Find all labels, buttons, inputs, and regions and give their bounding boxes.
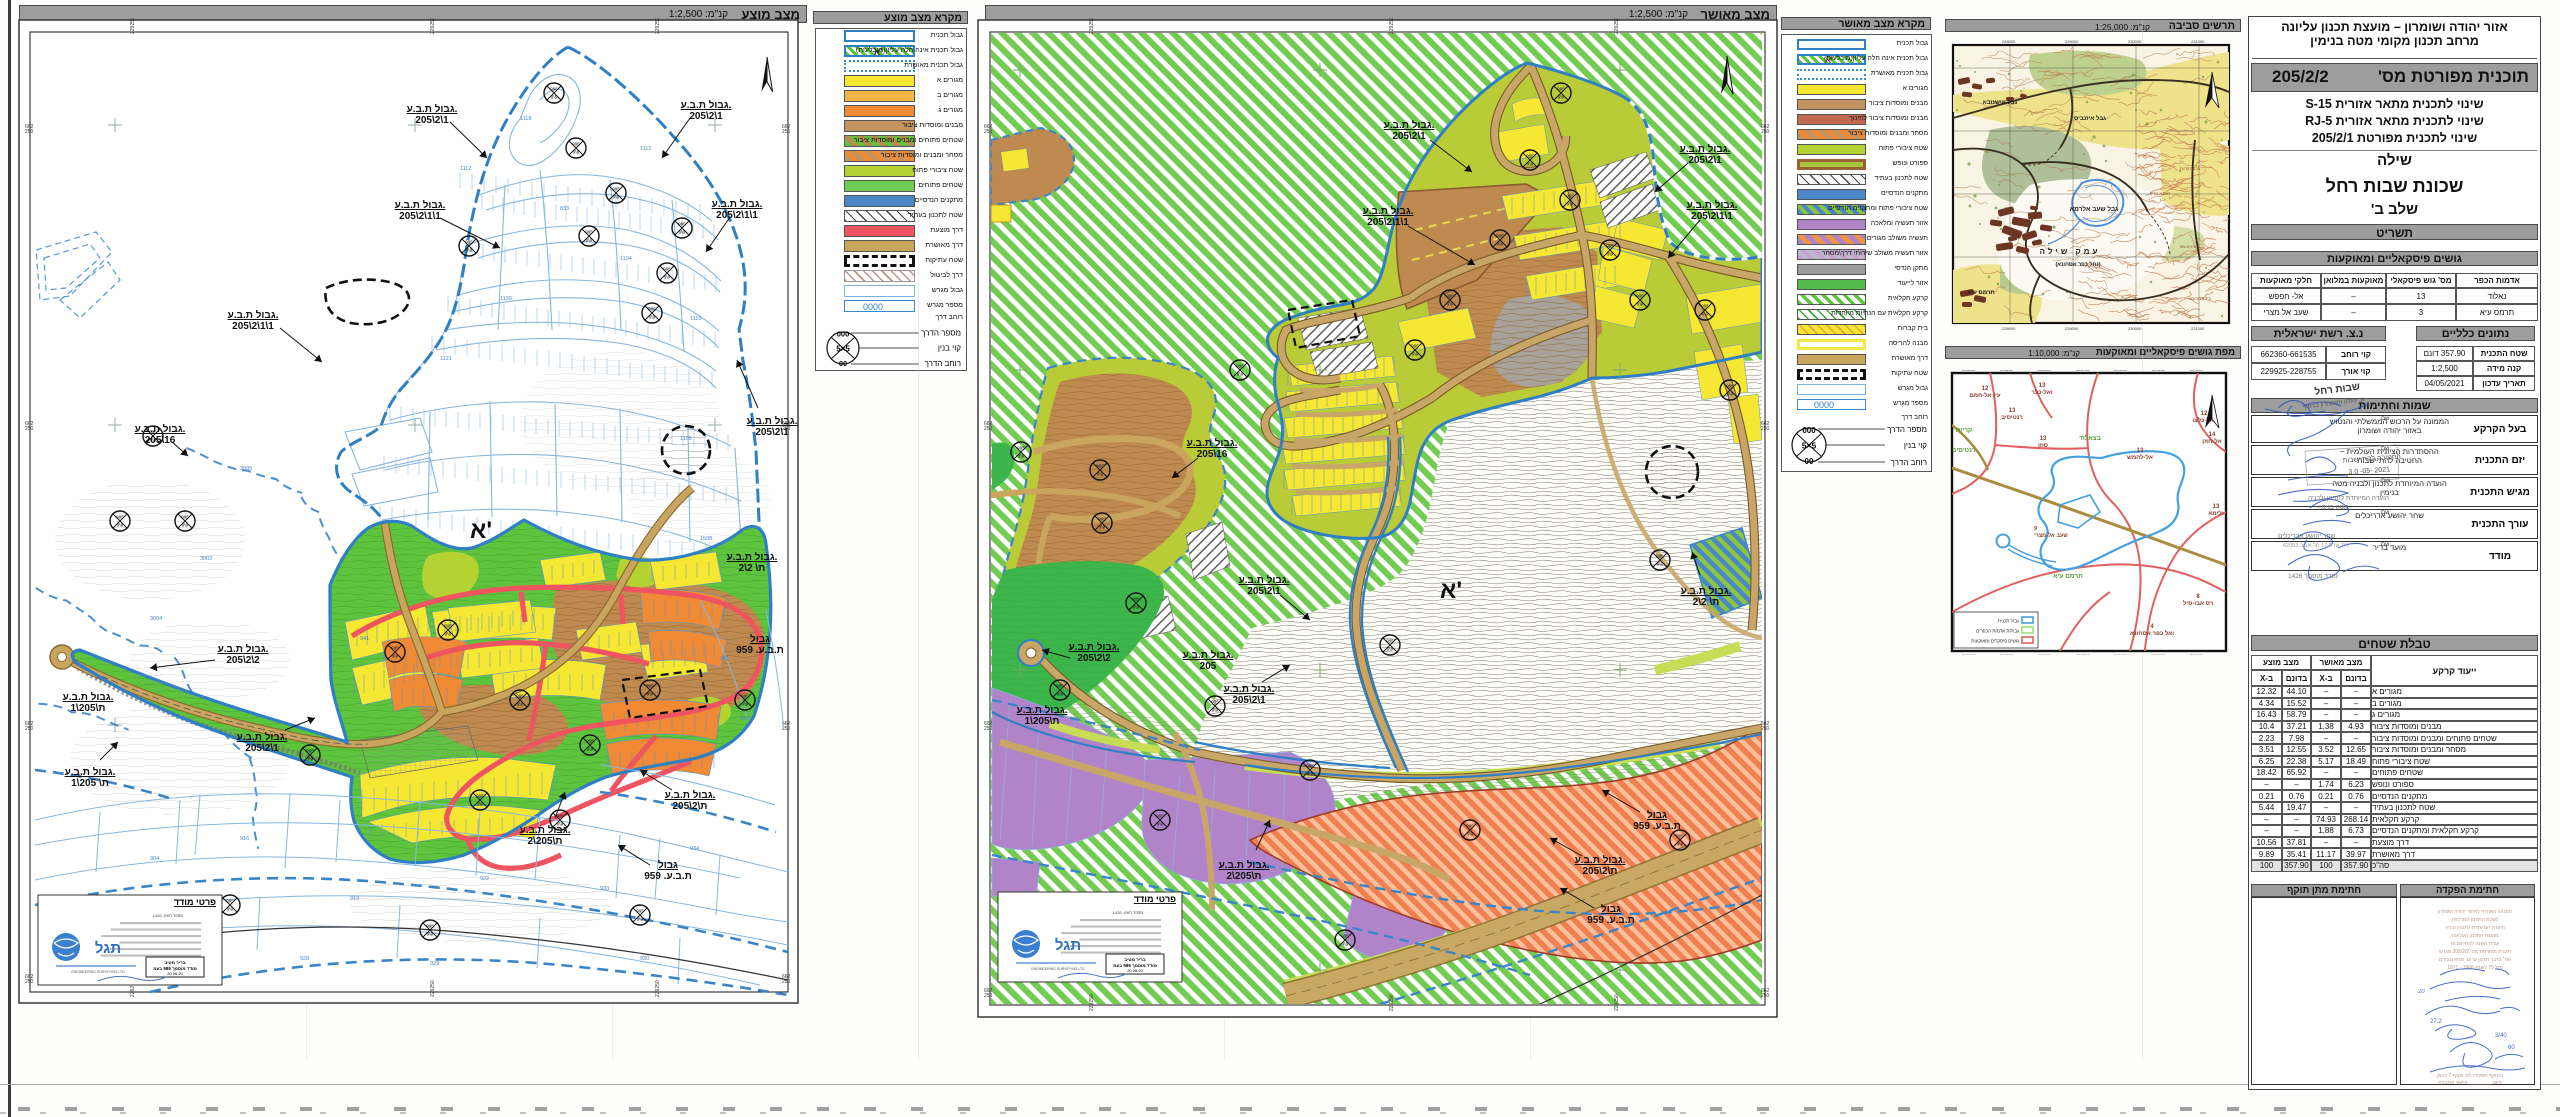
svg-text:אל-חוזן: אל-חוזן: [2202, 437, 2221, 445]
svg-text:הועדה המיוחדת לתכנון ולבניה: הועדה המיוחדת לתכנון ולבניה: [2308, 494, 2389, 502]
svg-text:995: 995: [1211, 700, 1219, 705]
svg-text:מועצת התכנון העליונה: מועצת התכנון העליונה: [2452, 932, 2499, 939]
svg-text:995: 995: [586, 739, 594, 744]
svg-text:גבל שעב אלרמא: גבל שעב אלרמא: [2070, 205, 2119, 213]
svg-text:גבול: גבול: [750, 633, 770, 645]
svg-text:ועדת משנה להתיישבות: ועדת משנה להתיישבות: [2451, 940, 2499, 947]
svg-text:13: 13: [2213, 504, 2220, 510]
svg-text:995: 995: [1526, 154, 1534, 159]
svg-text:רוחב הדרך: רוחב הדרך: [1891, 458, 1927, 467]
svg-text:9\9: 9\9: [664, 275, 671, 280]
svg-text:9\9: 9\9: [1637, 302, 1644, 307]
svg-text:228250: 228250: [2000, 653, 2014, 655]
svg-text:205\ת\2: 205\ת\2: [673, 801, 708, 812]
svg-text:9\9: 9\9: [649, 315, 656, 320]
svg-text:גבול: גבול: [1647, 809, 1667, 821]
svg-text:13: 13: [2039, 383, 2046, 389]
svg-text:3/40: 3/40: [2495, 1033, 2507, 1039]
svg-text:א': א': [470, 517, 492, 544]
svg-text:995: 995: [550, 87, 558, 92]
svg-text:205\2\1: 205\2\1: [755, 427, 789, 438]
svg-text:995: 995: [391, 646, 399, 651]
svg-text:229250: 229250: [1389, 18, 1395, 34]
svg-text:גבול ת.ב.ע.: גבול ת.ב.ע.: [1219, 859, 1270, 871]
svg-text:995: 995: [444, 624, 452, 629]
svg-text:995: 995: [741, 694, 749, 699]
svg-text:229500: 229500: [2190, 653, 2204, 655]
svg-text:מספר הדרך: מספר הדרך: [1887, 425, 1927, 434]
svg-text:1112: 1112: [460, 166, 471, 172]
svg-text:205\16: 205\16: [145, 435, 176, 446]
svg-text:229000: 229000: [2065, 326, 2079, 330]
svg-text:9\9: 9\9: [1558, 95, 1565, 100]
svg-text:995: 995: [1156, 814, 1164, 819]
svg-text:995: 995: [1701, 304, 1709, 309]
svg-text:9\9: 9\9: [1212, 708, 1219, 713]
svg-text:מודד מוסמך 1426: מודד מוסמך 1426: [2288, 573, 2338, 580]
svg-text:9\9: 9\9: [466, 248, 473, 253]
svg-text:995: 995: [1446, 294, 1454, 299]
svg-text:205\2\1: 205\2\1: [1392, 131, 1426, 142]
svg-text:995: 995: [1557, 87, 1565, 92]
svg-text:גבול ת.ב.ע.: גבול ת.ב.ע.: [1575, 854, 1626, 866]
svg-text:995: 995: [116, 515, 124, 520]
svg-text:תגל: תגל: [1055, 937, 1081, 954]
svg-text:9\9: 9\9: [1133, 605, 1140, 610]
svg-text:229250: 229250: [2152, 370, 2166, 372]
svg-text:גבול ת.ב.ע.: גבול ת.ב.ע.: [1687, 199, 1738, 211]
svg-text:995: 995: [1341, 934, 1349, 939]
svg-text:1\ת\205: 1\ת\205: [71, 703, 106, 714]
svg-text:ENGINEERING SURVEYING LTD: ENGINEERING SURVEYING LTD: [1031, 967, 1085, 971]
svg-text:מספר רשיון: 1426: מספר רשיון: 1426: [1113, 910, 1144, 915]
svg-text:9\9: 9\9: [1018, 454, 1025, 459]
svg-text:בריר מטיב: בריר מטיב: [1124, 957, 1145, 962]
svg-text:995: 995: [636, 909, 644, 914]
svg-text:229250: 229250: [2152, 653, 2166, 655]
svg-text:995: 995: [663, 267, 671, 272]
svg-text:1121: 1121: [440, 356, 452, 362]
svg-text:3005: 3005: [240, 466, 252, 472]
svg-text:גבול ת.ב.ע.: גבול ת.ב.ע.: [135, 423, 186, 435]
svg-text:9\9: 9\9: [517, 702, 524, 707]
svg-text:שבות רחל: שבות רחל: [2314, 383, 2361, 398]
svg-text:3004: 3004: [150, 616, 162, 622]
svg-text:גבול ת.ב.ע.: גבול ת.ב.ע.: [1680, 143, 1731, 155]
svg-text:205\2\1: 205\2\1: [415, 115, 449, 126]
svg-text:גבול: גבול: [1601, 903, 1621, 915]
svg-text:229000: 229000: [2065, 40, 2079, 44]
svg-text:205\2\1: 205\2\1: [245, 743, 279, 754]
svg-text:662250: 662250: [25, 721, 34, 732]
svg-text:תכנית מפורטת מס' 205/2/2 מגרש: תכנית מפורטת מס' 205/2/2 מגרש: [2439, 949, 2511, 955]
svg-text:גבול ת.ב.ע.: גבול ת.ב.ע.: [228, 309, 279, 321]
svg-text:רס אבו-סיל: רס אבו-סיל: [2183, 599, 2213, 607]
svg-text:662250: 662250: [25, 974, 34, 985]
svg-text:228750: 228750: [2076, 653, 2090, 655]
svg-text:229250: 229250: [1089, 994, 1095, 1011]
svg-text:205\2\1: 205\2\1: [1232, 695, 1266, 706]
svg-text:תרמס עיא: תרמס עיא: [2053, 573, 2083, 580]
svg-text:959 .ת.ב.ע: 959 .ת.ב.ע: [644, 871, 692, 882]
svg-text:995: 995: [646, 684, 654, 689]
svg-text:229250: 229250: [655, 980, 661, 997]
svg-text:א. יהודה והשומרון בנימין: א. יהודה והשומרון בנימין: [2304, 397, 2365, 410]
svg-text:פרטי מודד: פרטי מודד: [1134, 894, 1176, 904]
svg-text:גבול תכנית: גבול תכנית: [1998, 619, 2019, 624]
svg-text:2\ת\205: 2\ת\205: [1227, 871, 1262, 882]
svg-text:995: 995: [1606, 244, 1614, 249]
svg-text:9\9: 9\9: [1387, 647, 1394, 652]
svg-text:9\9: 9\9: [1447, 302, 1454, 307]
svg-text:ואל כפר אסחונא: ואל כפר אסחונא: [2130, 629, 2174, 637]
svg-text:גבול ת.ב.ע.: גבול ת.ב.ע.: [1224, 683, 1275, 695]
svg-text:9\9: 9\9: [1157, 822, 1164, 827]
svg-text:ואל-כלר: ואל-כלר: [2031, 388, 2052, 396]
svg-text:9\9: 9\9: [586, 238, 593, 243]
svg-text:205\2\1\1: 205\2\1\1: [399, 211, 441, 222]
svg-text:גבול ת.ב.ע.: גבול ת.ב.ע.: [1069, 641, 1120, 653]
svg-text:930: 930: [640, 956, 649, 962]
svg-text:לשכת התכנון המרכזית: לשכת התכנון המרכזית: [2452, 916, 2499, 923]
svg-text:000: 000: [837, 330, 850, 339]
svg-text:995: 995: [1236, 364, 1244, 369]
svg-text:229250: 229250: [1614, 994, 1620, 1011]
svg-text:גבול ת.ב.ע.: גבול ת.ב.ע.: [1681, 585, 1732, 597]
svg-text:רנטיסיב: רנטיסיב: [2001, 415, 2023, 421]
svg-text:9\9: 9\9: [392, 654, 399, 659]
svg-text:995: 995: [572, 142, 580, 147]
svg-text:גושים פיסקלים ומאוקעות: גושים פיסקלים ומאוקעות: [1971, 639, 2019, 644]
svg-text:9\9: 9\9: [1342, 942, 1349, 947]
svg-text:רנטיסיב: רנטיסיב: [1952, 447, 1976, 454]
svg-text:995: 995: [1017, 446, 1025, 451]
svg-text:1508: 1508: [700, 536, 712, 542]
svg-text:995: 995: [1386, 639, 1394, 644]
svg-text:00: 00: [1805, 457, 1814, 466]
svg-text:995: 995: [1466, 824, 1474, 829]
svg-text:995: 995: [1566, 194, 1574, 199]
svg-text:228500: 228500: [2038, 653, 2052, 655]
svg-text:9\9: 9\9: [1097, 472, 1104, 477]
svg-text:995: 995: [1306, 764, 1314, 769]
svg-text:995: 995: [476, 794, 484, 799]
svg-text:5×5: 5×5: [1802, 441, 1817, 451]
svg-text:228000: 228000: [1962, 653, 1976, 655]
svg-text:2\ת\205: 2\ת\205: [528, 836, 563, 847]
svg-text:1\ת\205: 1\ת\205: [1025, 716, 1060, 727]
svg-text:הור' בדבר תכנון ערים, מחוז ובנ: הור' בדבר תכנון ערים, מחוז ובנינים: [2439, 957, 2511, 963]
svg-text:בריר מטיב: בריר מטיב: [164, 960, 185, 965]
svg-text:231000: 231000: [2191, 40, 2205, 44]
svg-text:ביד אבוהיבש: ביד אבוהיבש: [2189, 296, 2211, 301]
svg-text:החטיבה להתיישבות: החטיבה להתיישבות: [2342, 453, 2401, 465]
svg-text:גבול ת.ב.ע.: גבול ת.ב.ע.: [407, 103, 458, 115]
svg-text:27.2: 27.2: [2430, 1019, 2442, 1025]
svg-text:1112: 1112: [640, 146, 651, 152]
svg-text:9\9: 9\9: [1677, 842, 1684, 847]
svg-text:995: 995: [612, 187, 620, 192]
svg-text:995: 995: [306, 749, 314, 754]
svg-text:9\9: 9\9: [1567, 202, 1574, 207]
svg-text:995: 995: [426, 924, 434, 929]
svg-text:205\2\1: 205\2\1: [689, 111, 723, 122]
svg-text:מטה בנימין: מטה בנימין: [2318, 504, 2348, 511]
svg-text:רח' שרת 12 תל-אביב 62093: רח' שרת 12 תל-אביב 62093: [2283, 542, 2348, 549]
svg-text:231000: 231000: [2191, 326, 2205, 330]
svg-text:רוחב הדרך: רוחב הדרך: [925, 359, 961, 368]
svg-text:9\9: 9\9: [307, 757, 314, 762]
svg-text:9\9: 9\9: [1702, 312, 1709, 317]
svg-text:00: 00: [839, 359, 847, 368]
svg-text:9\9: 9\9: [477, 802, 484, 807]
svg-text:2\ת\ 2: 2\ת\ 2: [739, 563, 766, 574]
svg-text:עיון א-עש: עיון א-עש: [2180, 244, 2196, 249]
svg-text:גבול ת.ב.ע.: גבול ת.ב.ע.: [520, 824, 571, 836]
svg-text:13: 13: [2009, 408, 2016, 414]
svg-text:995: 995: [648, 307, 656, 312]
svg-text:בתוקף תפקידי לפי סעיף 7 לחוק: בתוקף תפקידי לפי סעיף 7 לחוק: [2437, 1072, 2503, 1079]
svg-text:995: 995: [1636, 294, 1644, 299]
svg-text:גבול ת.ב.ע.: גבול ת.ב.ע.: [218, 643, 269, 655]
svg-text:662250: 662250: [1761, 988, 1770, 999]
svg-text:916: 916: [240, 836, 249, 842]
svg-text:995: 995: [1656, 554, 1664, 559]
svg-text:662250: 662250: [25, 421, 34, 432]
svg-text:995: 995: [516, 694, 524, 699]
svg-text:228000: 228000: [2002, 40, 2016, 44]
svg-text:ולימא: ולימא: [2208, 509, 2224, 517]
svg-text:205\2\1\1: 205\2\1\1: [1367, 217, 1409, 228]
svg-text:1118: 1118: [520, 116, 531, 122]
svg-text:חרבת קריות: חרבת קריות: [2180, 166, 2201, 171]
svg-text:גבול: גבול: [658, 859, 678, 871]
svg-text:גבולות אדמות הכפרים: גבולות אדמות הכפרים: [1976, 629, 2019, 634]
svg-text:2\ת\ 2: 2\ת\ 2: [1693, 597, 1720, 608]
svg-text:662250: 662250: [984, 124, 993, 135]
svg-text:9\9: 9\9: [1307, 772, 1314, 777]
svg-text:229250: 229250: [1614, 18, 1620, 34]
svg-text:904: 904: [150, 856, 159, 862]
svg-text:גבול ת.ב.ע.: גבול ת.ב.ע.: [1017, 704, 1068, 716]
svg-text:9: 9: [2034, 526, 2037, 532]
svg-text:929: 929: [430, 961, 439, 967]
svg-text:1\ת\ 205: 1\ת\ 205: [71, 778, 109, 789]
svg-text:גבול ת.ב.ע.: גבול ת.ב.ע.: [1384, 119, 1435, 131]
svg-text:קוי בנין: קוי בנין: [938, 344, 961, 353]
svg-text:228500: 228500: [2038, 370, 2052, 372]
svg-text:1104: 1104: [620, 256, 632, 262]
svg-text:מספר הדרך: מספר הדרך: [921, 329, 961, 338]
svg-text:205\2\1\1: 205\2\1\1: [232, 321, 274, 332]
svg-text:גבול ת.ב.ע.: גבול ת.ב.ע.: [1187, 437, 1238, 449]
svg-text:גבול ת.ב.ע.: גבול ת.ב.ע.: [1183, 649, 1234, 661]
svg-text:662250: 662250: [1761, 421, 1770, 432]
svg-text:9\9: 9\9: [117, 523, 124, 528]
svg-text:20.06.20: 20.06.20: [167, 971, 183, 976]
svg-text:(נחל כפר אסחונא): (נחל כפר אסחונא): [2055, 261, 2100, 268]
svg-text:933: 933: [600, 886, 609, 892]
svg-text:230000: 230000: [2128, 326, 2142, 330]
svg-text:5×5: 5×5: [836, 345, 850, 354]
svg-text:205\2\2: 205\2\2: [226, 655, 260, 666]
svg-text:14: 14: [2209, 432, 2216, 438]
svg-text:גבל אישנובא: גבל אישנובא: [1983, 98, 2018, 106]
svg-text:13: 13: [2040, 436, 2047, 442]
svg-text:1115: 1115: [690, 316, 701, 322]
svg-text:928: 928: [300, 956, 309, 962]
svg-text:995: 995: [585, 230, 593, 235]
svg-text:229500: 229500: [2190, 370, 2204, 372]
svg-text:205\2\1: 205\2\1: [1247, 586, 1281, 597]
svg-text:עמק שילה: עמק שילה: [2040, 247, 2101, 256]
svg-text:9\9: 9\9: [1527, 162, 1534, 167]
svg-text:תרמס עיא: תרמס עיא: [1967, 290, 1994, 296]
svg-text:גבל איזנביס: גבל איזנביס: [2074, 114, 2106, 122]
svg-text:תגל: תגל: [95, 940, 121, 957]
svg-text:9\9: 9\9: [587, 747, 594, 752]
svg-text:229250: 229250: [1089, 18, 1095, 34]
svg-text:ת.ב.ע. 959: ת.ב.ע. 959: [1633, 821, 1681, 832]
svg-text:205\2\1\1: 205\2\1\1: [1691, 211, 1733, 222]
svg-text:229250: 229250: [130, 18, 136, 34]
svg-text:ת.ב.ע. 959: ת.ב.ע. 959: [736, 645, 784, 656]
svg-text:9\9: 9\9: [742, 702, 749, 707]
svg-text:9\9: 9\9: [182, 523, 189, 528]
svg-text:228250: 228250: [2000, 370, 2014, 372]
svg-text:995: 995: [1056, 684, 1064, 689]
svg-text:229250: 229250: [430, 980, 436, 997]
svg-text:אל-להמש: אל-להמש: [2127, 453, 2153, 461]
svg-text:995: 995: [678, 222, 686, 227]
svg-text:229250: 229250: [430, 18, 436, 34]
svg-text:230000: 230000: [2128, 40, 2142, 44]
svg-text:662250: 662250: [984, 421, 993, 432]
svg-text:ENGINEERING SURVEYING LTD: ENGINEERING SURVEYING LTD: [71, 970, 125, 974]
svg-text:מיום ________ אישור התכנית: מיום ________ אישור התכנית: [2438, 1080, 2502, 1085]
svg-text:228000: 228000: [1962, 370, 1976, 372]
svg-text:המנהל האזרחי לאיזור יהודה ושומ: המנהל האזרחי לאיזור יהודה ושומרון: [2438, 908, 2512, 915]
svg-text:205\2\1: 205\2\1: [1688, 155, 1722, 166]
svg-text:9\9: 9\9: [1099, 525, 1106, 530]
svg-text:1105: 1105: [680, 436, 692, 442]
svg-text:919: 919: [350, 896, 359, 902]
svg-text:גבול ת.ב.ע.: גבול ת.ב.ע.: [665, 789, 716, 801]
svg-text:662250: 662250: [1761, 721, 1770, 732]
svg-text:229250: 229250: [1389, 994, 1395, 1011]
svg-text:ראס א-טריף: ראס א-טריף: [2150, 191, 2170, 196]
svg-text:205\2\1\1: 205\2\1\1: [716, 210, 758, 221]
svg-text:9\9: 9\9: [1237, 372, 1244, 377]
svg-text:942: 942: [740, 716, 749, 722]
svg-text:גבול ת.ב.ע.: גבול ת.ב.ע.: [681, 99, 732, 111]
svg-text:9\9: 9\9: [1657, 562, 1664, 567]
svg-text:שחר יהושע אדריכלים: שחר יהושע אדריכלים: [2278, 532, 2336, 540]
svg-text:995: 995: [465, 240, 473, 245]
svg-text:13: 13: [2137, 448, 2144, 454]
svg-text:229250: 229250: [655, 18, 661, 34]
svg-text:941: 941: [720, 656, 729, 662]
svg-text:205\ת\2: 205\ת\2: [1583, 866, 1618, 877]
svg-text:228750: 228750: [2076, 370, 2090, 372]
svg-text:גבול ת.ב.ע.: גבול ת.ב.ע.: [237, 731, 288, 743]
svg-text:גבול ת.ב.ע.: גבול ת.ב.ע.: [747, 415, 798, 427]
svg-text:934: 934: [690, 846, 699, 852]
svg-text:3002: 3002: [200, 556, 212, 562]
svg-text:9\9: 9\9: [1412, 352, 1419, 357]
svg-text:995: 995: [1132, 597, 1140, 602]
svg-text:הועדה המיוחדת לתכנון ובניה: הועדה המיוחדת לתכנון ובניה: [2445, 924, 2505, 931]
svg-text:א': א': [1440, 577, 1462, 604]
svg-text:1130: 1130: [500, 296, 512, 302]
svg-text:בצאלוד: בצאלוד: [2079, 434, 2101, 442]
svg-text:9\9: 9\9: [227, 907, 234, 912]
svg-text:9\9: 9\9: [1727, 392, 1734, 397]
svg-text:גבול ת.ב.ע.: גבול ת.ב.ע.: [63, 691, 114, 703]
svg-text:995: 995: [226, 899, 234, 904]
svg-text:9\9: 9\9: [613, 195, 620, 200]
svg-text:205: 205: [1200, 661, 1217, 672]
svg-text:9\9: 9\9: [551, 95, 558, 100]
svg-text:995: 995: [1411, 344, 1419, 349]
svg-text:גבול ת.ב.ע.: גבול ת.ב.ע.: [712, 198, 763, 210]
svg-text:995: 995: [556, 814, 564, 819]
svg-text:9\9: 9\9: [1057, 692, 1064, 697]
svg-text:גבול ת.ב.ע.: גבול ת.ב.ע.: [1363, 205, 1414, 217]
svg-text:9\9: 9\9: [679, 230, 686, 235]
svg-text:9\9: 9\9: [573, 150, 580, 155]
svg-text:60: 60: [2508, 1045, 2515, 1051]
svg-text:662250: 662250: [782, 124, 791, 135]
svg-text:9\9: 9\9: [427, 932, 434, 937]
svg-text:662250: 662250: [1761, 124, 1770, 135]
svg-text:995: 995: [1096, 464, 1104, 469]
svg-text:קוי בנין: קוי בנין: [1904, 441, 1927, 450]
svg-text:גבול ת.ב.ע.: גבול ת.ב.ע.: [1239, 574, 1290, 586]
svg-text:9\9: 9\9: [445, 632, 452, 637]
svg-text:20.06.20: 20.06.20: [1127, 968, 1143, 973]
svg-text:205\16: 205\16: [1197, 449, 1228, 460]
svg-text:662250: 662250: [25, 124, 34, 135]
svg-text:9\9: 9\9: [1467, 832, 1474, 837]
svg-text:12: 12: [1982, 386, 1989, 392]
svg-text:9\9: 9\9: [647, 692, 654, 697]
svg-text:662250: 662250: [984, 721, 993, 732]
svg-text:9\9: 9\9: [1607, 252, 1614, 257]
svg-text:662250: 662250: [984, 988, 993, 999]
svg-text:995: 995: [1098, 517, 1106, 522]
svg-text:9\9: 9\9: [1497, 242, 1504, 247]
svg-text:941: 941: [360, 636, 369, 642]
svg-text:229000: 229000: [2114, 370, 2128, 372]
svg-text:922: 922: [480, 876, 489, 882]
svg-text:שעב אל-מצרי: שעב אל-מצרי: [2034, 532, 2068, 539]
svg-text:995: 995: [1496, 234, 1504, 239]
svg-text:995: 995: [181, 515, 189, 520]
svg-text:995: 995: [1726, 384, 1734, 389]
svg-text:20: 20: [2418, 989, 2425, 995]
svg-text:228000: 228000: [2002, 326, 2016, 330]
svg-text:פרטי מודד: פרטי מודד: [174, 897, 216, 907]
svg-text:9\9: 9\9: [637, 917, 644, 922]
svg-text:עין אל-חמם: עין אל-חמם: [1969, 391, 2001, 399]
svg-text:229000: 229000: [2114, 653, 2128, 655]
svg-text:833: 833: [560, 206, 569, 212]
svg-text:995: 995: [1676, 834, 1684, 839]
svg-text:3 0 -05- 2021: 3 0 -05- 2021: [2348, 466, 2390, 476]
svg-text:959 .ת.ב.ע: 959 .ת.ב.ע: [1587, 915, 1635, 926]
svg-text:קריות: קריות: [1956, 427, 1973, 434]
